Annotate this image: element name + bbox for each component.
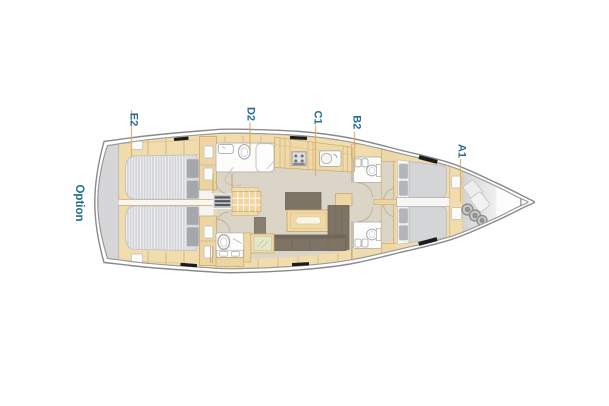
svg-text:B2: B2 xyxy=(351,115,363,129)
svg-text:Option: Option xyxy=(73,184,85,221)
svg-text:C1: C1 xyxy=(312,110,324,124)
svg-text:D2: D2 xyxy=(245,107,257,121)
svg-text:A1: A1 xyxy=(456,144,468,158)
svg-text:E2: E2 xyxy=(128,113,140,126)
